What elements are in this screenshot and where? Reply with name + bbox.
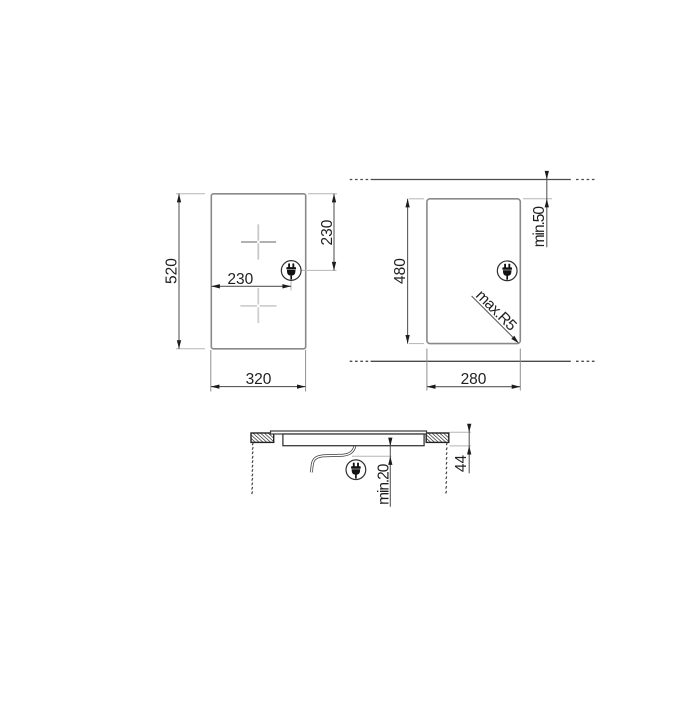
- svg-text:520: 520: [164, 258, 181, 284]
- svg-text:min.20: min.20: [376, 463, 393, 505]
- svg-text:280: 280: [461, 371, 487, 388]
- svg-text:44: 44: [453, 455, 470, 473]
- svg-text:230: 230: [227, 271, 253, 288]
- svg-text:max.R5: max.R5: [472, 287, 519, 334]
- svg-text:min.50: min.50: [531, 206, 548, 248]
- svg-text:230: 230: [319, 219, 336, 245]
- svg-text:480: 480: [392, 258, 409, 284]
- svg-text:320: 320: [246, 371, 272, 388]
